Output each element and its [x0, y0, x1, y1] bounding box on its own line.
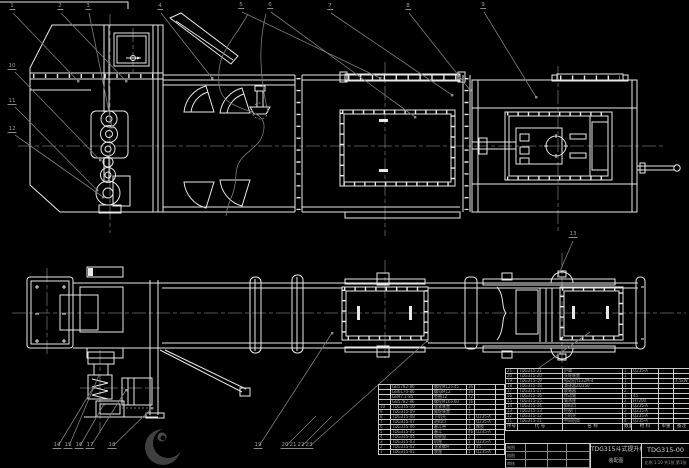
sign-label: 描图: [506, 452, 526, 460]
balloon-label: 13: [569, 231, 578, 238]
bom-header-cell: 代 号: [518, 424, 563, 431]
bom-row: 1TDG315-01底座1Q235-A: [379, 450, 505, 455]
bom-cell: 1: [467, 450, 475, 455]
sign-cell: [548, 452, 567, 460]
sheet-frame: [0, 2, 128, 9]
balloon-label: 16: [75, 442, 84, 449]
title-block: 制图描图审核 TDG315斗式提升机 装配图 TDG315-00 比例 1:10…: [505, 443, 689, 468]
bom-row: 8TDG315-08下机壳1Q235-A: [379, 415, 505, 420]
balloon-label: 23: [305, 442, 314, 449]
bom-cell: 7.5kW: [674, 379, 689, 384]
drawing-title-cell: TDG315斗式提升机 装配图: [591, 444, 642, 468]
elevation-view: [30, 13, 680, 218]
sign-label: 审核: [506, 460, 526, 468]
balloon-label: 2: [57, 3, 63, 10]
bom-cell: 1: [379, 450, 391, 455]
bom-cell: [496, 450, 505, 455]
sign-label: 制图: [506, 444, 526, 452]
balloon-label: 15: [64, 442, 73, 449]
bom-row: 7TDG315-07进料口1Q235-A: [379, 420, 505, 425]
bom-cell: TDG315-01: [391, 450, 433, 455]
drawing-number: TDG315-00: [642, 444, 689, 458]
sign-cell: [567, 460, 590, 468]
balloon-label: 17: [86, 442, 95, 449]
balloon-label: 9: [480, 2, 486, 9]
bom-table-right: 21TDG315-21护罩1Q235-A20TDG315-20头轮装置119TD…: [505, 368, 689, 431]
balloon-label: 18: [108, 442, 117, 449]
balloon-label: 14: [53, 442, 62, 449]
bom-header-cell: 序号: [506, 424, 518, 431]
sign-cell: [526, 452, 548, 460]
balloon-label: 5: [238, 2, 244, 9]
balloon-label: 7: [327, 3, 333, 10]
bom-cell: 底座: [433, 450, 467, 455]
balloon-label: 8: [405, 3, 411, 10]
watermark-blob: [145, 428, 183, 465]
bom-header-cell: 名 称: [563, 424, 623, 431]
scale-row: 比例 1:10 共1张 第1张: [642, 458, 689, 467]
bom-header-cell: 备注: [674, 424, 689, 431]
bom-row: 3TDG315-03机座1Q235-A: [379, 440, 505, 445]
sign-cell: [567, 444, 590, 452]
signature-grid: 制图描图审核: [506, 444, 591, 468]
bom-row: 5TDG315-05畚斗46Q235-A: [379, 430, 505, 435]
balloon-label: 10: [8, 63, 17, 70]
balloon-label: 1: [9, 3, 15, 10]
balloon-label: 12: [8, 126, 17, 133]
bom-cell: Q235-A: [475, 450, 496, 455]
sign-cell: [526, 460, 548, 468]
bom-table-left: GB5782-86螺栓M12×4536GB6170-86螺母M1236GB97.…: [378, 384, 505, 455]
sign-cell: [548, 460, 567, 468]
balloon-label: 4: [157, 3, 163, 10]
drawing-title: TDG315斗式提升机: [591, 444, 641, 456]
bom-header-row: 序号代 号名 称数量材 料单重备注: [506, 424, 689, 431]
drawing-number-cell: TDG315-00 比例 1:10 共1张 第1张: [642, 444, 689, 468]
sign-cell: [526, 444, 548, 452]
sign-cell: [567, 452, 590, 460]
sign-cell: [548, 444, 567, 452]
balloon-label: 6: [267, 2, 273, 9]
bom-header-cell: 材 料: [632, 424, 659, 431]
balloon-label: 11: [8, 98, 17, 105]
cad-drawing-sheet: 1234567891011121314151617181920212223 GB…: [0, 0, 689, 468]
balloon-label: 19: [254, 442, 263, 449]
drawing-subtitle: 装配图: [591, 456, 641, 466]
bom-header-cell: 数量: [623, 424, 632, 431]
balloon-label: 3: [85, 3, 91, 10]
bom-header-cell: 单重: [659, 424, 674, 431]
